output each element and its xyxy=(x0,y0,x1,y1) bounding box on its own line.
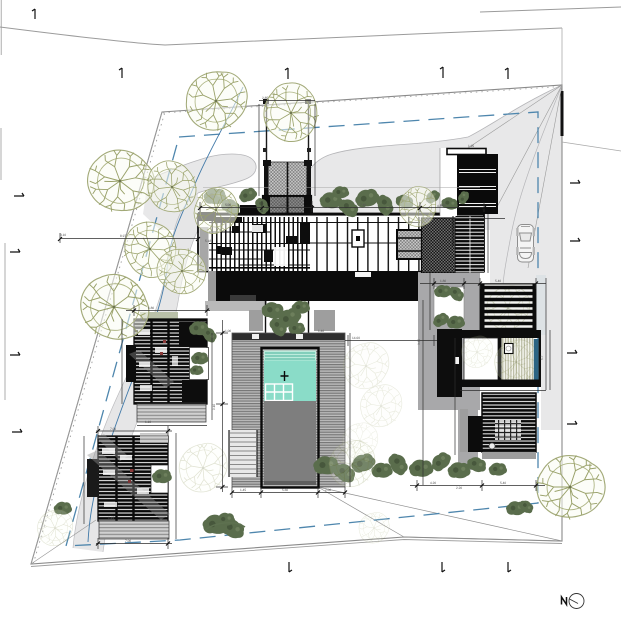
svg-text:2.85: 2.85 xyxy=(262,96,268,100)
svg-text:1.45: 1.45 xyxy=(240,488,246,492)
svg-text:4.30: 4.30 xyxy=(437,204,443,208)
svg-text:1.00: 1.00 xyxy=(225,329,231,333)
svg-text:1.40: 1.40 xyxy=(318,329,324,333)
svg-text:7.40: 7.40 xyxy=(360,203,366,207)
svg-text:4.20: 4.20 xyxy=(430,481,436,485)
svg-text:14.60: 14.60 xyxy=(352,336,360,340)
svg-text:8.97: 8.97 xyxy=(120,234,126,238)
svg-text:5.00: 5.00 xyxy=(225,203,231,207)
svg-text:5.60: 5.60 xyxy=(282,488,288,492)
svg-text:3.10: 3.10 xyxy=(60,233,66,237)
svg-text:7.00: 7.00 xyxy=(110,427,116,431)
svg-text:1.45: 1.45 xyxy=(108,516,114,520)
svg-text:1.10: 1.10 xyxy=(145,420,151,424)
svg-text:5.40: 5.40 xyxy=(495,279,501,283)
svg-text:1.80: 1.80 xyxy=(440,279,446,283)
svg-text:2.20: 2.20 xyxy=(456,486,462,490)
svg-text:6.80: 6.80 xyxy=(148,306,154,310)
svg-text:7.00: 7.00 xyxy=(125,539,131,543)
svg-text:3.20: 3.20 xyxy=(280,203,286,207)
svg-text:1.95: 1.95 xyxy=(468,144,474,148)
svg-text:5.7: 5.7 xyxy=(540,355,544,360)
svg-text:3.65: 3.65 xyxy=(417,339,421,345)
svg-text:5.18: 5.18 xyxy=(205,239,211,243)
svg-text:2.00: 2.00 xyxy=(325,488,331,492)
svg-text:9.10: 9.10 xyxy=(212,404,216,410)
svg-text:5.40: 5.40 xyxy=(500,481,506,485)
